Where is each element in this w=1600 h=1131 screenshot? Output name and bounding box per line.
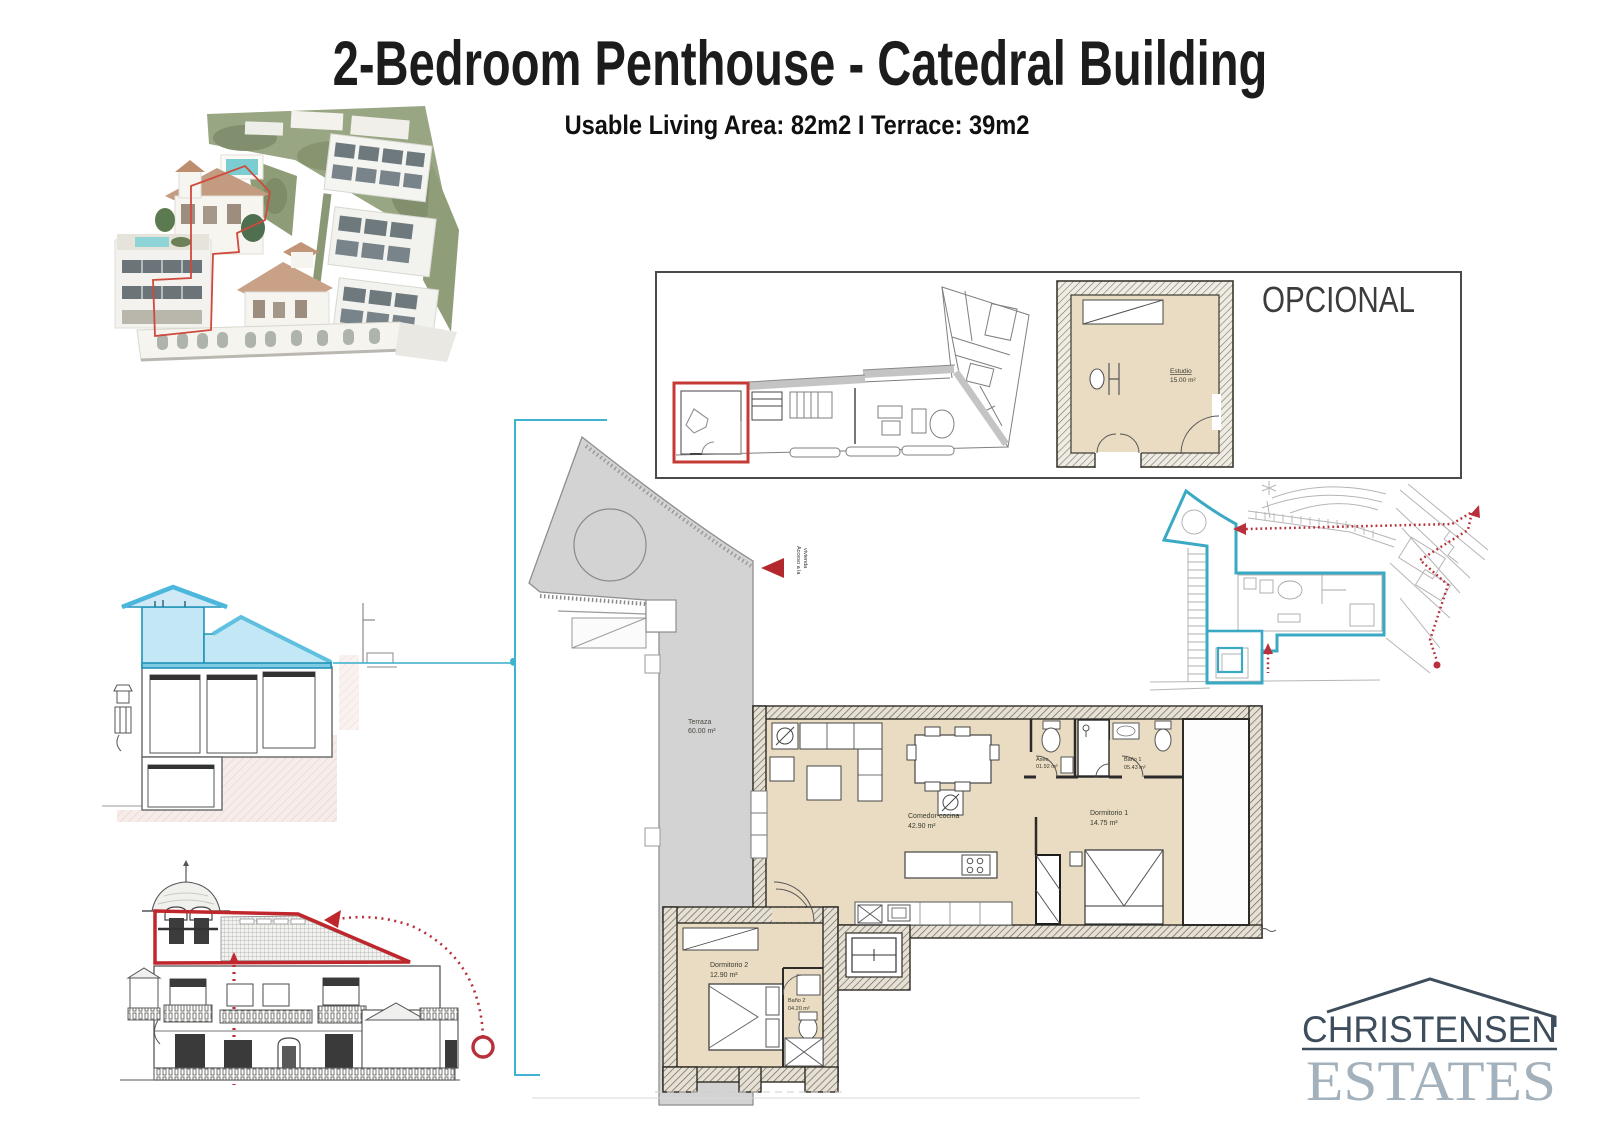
svg-text:Comedor-cocina: Comedor-cocina	[908, 813, 959, 820]
svg-text:60.00 m²: 60.00 m²	[688, 728, 716, 735]
svg-text:42.90 m²: 42.90 m²	[908, 823, 936, 830]
svg-text:05.43 m²: 05.43 m²	[1124, 765, 1146, 771]
svg-text:Dormitorio 2: Dormitorio 2	[710, 962, 748, 969]
svg-text:Baño 1: Baño 1	[1124, 757, 1141, 763]
svg-text:CHRISTENSEN: CHRISTENSEN	[1302, 1009, 1557, 1050]
svg-text:Terraza: Terraza	[688, 719, 711, 726]
svg-text:Dormitorio 1: Dormitorio 1	[1090, 810, 1128, 817]
svg-text:Baño 2: Baño 2	[788, 998, 805, 1004]
svg-text:15.00 m²: 15.00 m²	[1170, 377, 1196, 384]
svg-text:OPCIONAL: OPCIONAL	[1262, 279, 1415, 320]
svg-text:ESTATES: ESTATES	[1306, 1050, 1556, 1110]
svg-text:vivienda: vivienda	[802, 548, 808, 569]
svg-text:12.90 m²: 12.90 m²	[710, 972, 738, 979]
svg-text:Estudio: Estudio	[1170, 368, 1192, 375]
svg-text:04.20 m²: 04.20 m²	[788, 1006, 810, 1012]
svg-text:01.92 m²: 01.92 m²	[1036, 764, 1058, 770]
svg-text:Aseo: Aseo	[1036, 757, 1049, 763]
svg-text:Acceso a la: Acceso a la	[795, 546, 801, 575]
svg-text:14.75 m²: 14.75 m²	[1090, 820, 1118, 827]
